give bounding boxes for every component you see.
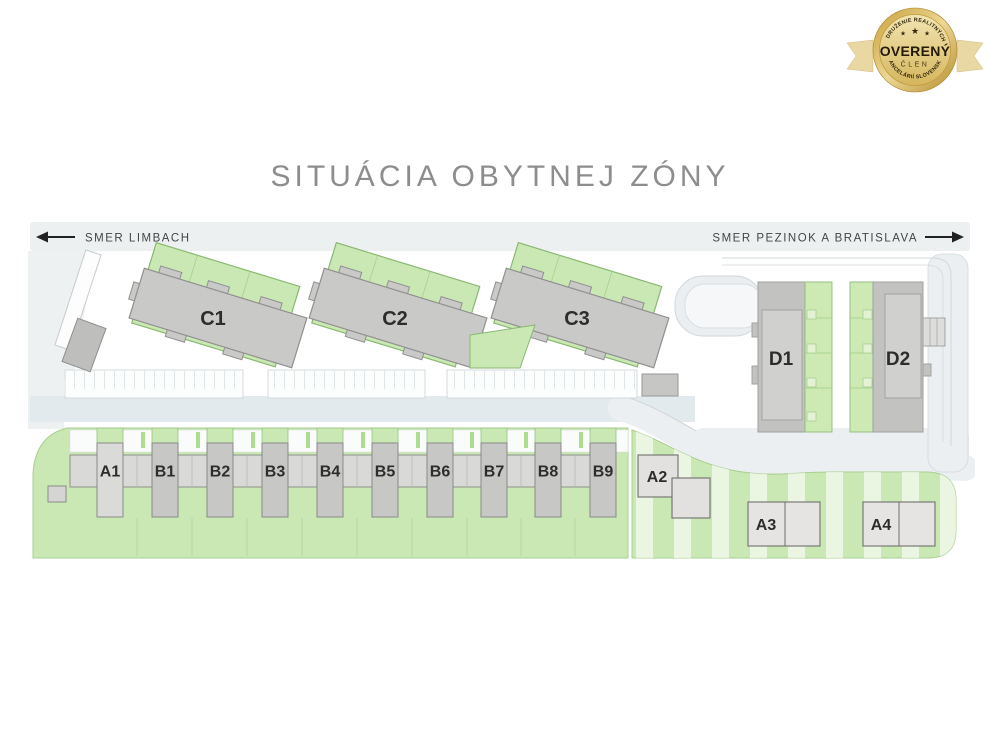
ribbon-left	[847, 40, 873, 72]
label-b6: B6	[430, 464, 451, 481]
building-d2-annex	[923, 318, 945, 346]
label-d1: D1	[769, 349, 794, 370]
ribbon-right	[957, 40, 983, 72]
label-b3: B3	[265, 464, 286, 481]
label-a4: A4	[871, 517, 892, 534]
parking-strip	[65, 370, 637, 398]
label-a1: A1	[100, 464, 121, 481]
verified-member-badge: ZDRUŽENIE REALITNÝCH ★ ★ ★ OVERENÝ ČLEN …	[845, 6, 985, 94]
badge-subtitle: ČLEN	[901, 60, 930, 69]
label-b7: B7	[484, 464, 505, 481]
label-c2: C2	[382, 308, 408, 330]
label-d2: D2	[886, 349, 910, 370]
badge-title: OVERENÝ	[880, 42, 951, 59]
svg-text:SMER LIMBACH: SMER LIMBACH	[85, 233, 191, 245]
label-b5: B5	[375, 464, 396, 481]
star-icon: ★	[924, 30, 930, 38]
building-d2-lower-floors	[885, 294, 921, 398]
star-icon: ★	[911, 26, 919, 36]
terrace-strip-d1	[805, 282, 832, 432]
site-plan-map: SMER LIMBACH SMER PEZINOK A BRATISLAVA	[25, 218, 975, 608]
building-a3-group: A3	[748, 502, 820, 546]
label-c1: C1	[200, 308, 226, 330]
label-b2: B2	[210, 464, 231, 481]
label-a3: A3	[756, 517, 777, 534]
label-c3: C3	[564, 308, 590, 330]
building-a4-group: A4	[863, 502, 935, 546]
access-road	[30, 396, 695, 422]
garage-building	[642, 374, 678, 396]
label-b8: B8	[538, 464, 559, 481]
site-plan-page: ZDRUŽENIE REALITNÝCH ★ ★ ★ OVERENÝ ČLEN …	[0, 0, 1000, 750]
label-b1: B1	[155, 464, 176, 481]
building-a2-annex	[672, 478, 710, 518]
page-title: SITUÁCIA OBYTNEJ ZÓNY	[0, 160, 1000, 194]
label-b9: B9	[593, 464, 614, 481]
svg-text:SMER PEZINOK A BRATISLAVA: SMER PEZINOK A BRATISLAVA	[712, 233, 918, 245]
right-road	[928, 254, 968, 472]
label-a2: A2	[647, 469, 668, 486]
turnaround-island	[685, 284, 763, 328]
terrace-strip-d2	[850, 282, 873, 432]
label-b4: B4	[320, 464, 341, 481]
star-icon: ★	[900, 30, 906, 38]
garden-shed	[48, 486, 66, 502]
